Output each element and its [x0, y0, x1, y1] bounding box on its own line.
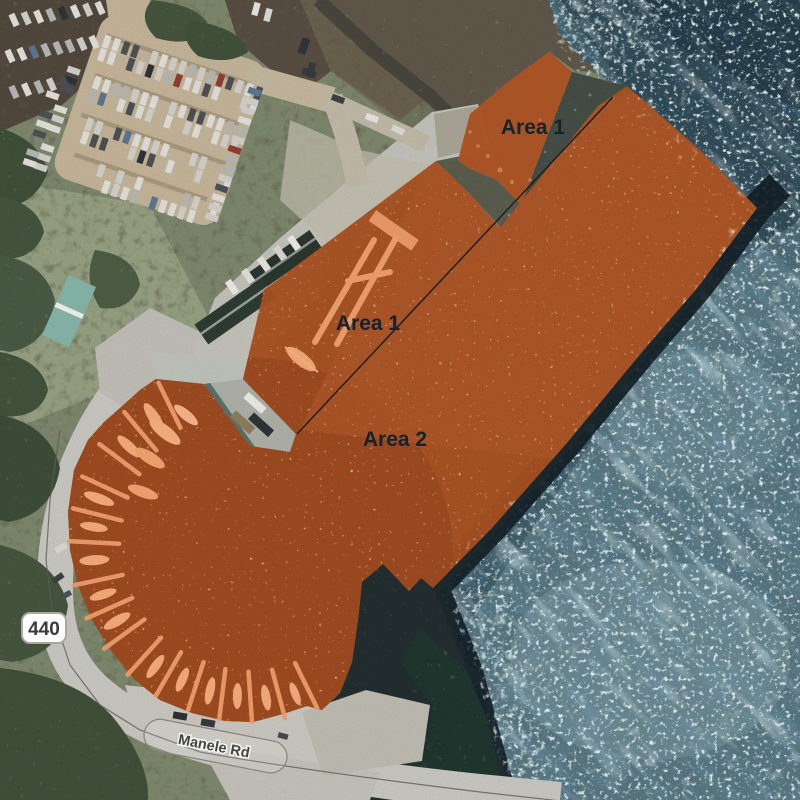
- svg-text:Area 1: Area 1: [501, 116, 566, 139]
- svg-text:Area 2: Area 2: [363, 428, 427, 451]
- svg-text:Area 1: Area 1: [336, 312, 401, 335]
- svg-text:440: 440: [28, 619, 60, 640]
